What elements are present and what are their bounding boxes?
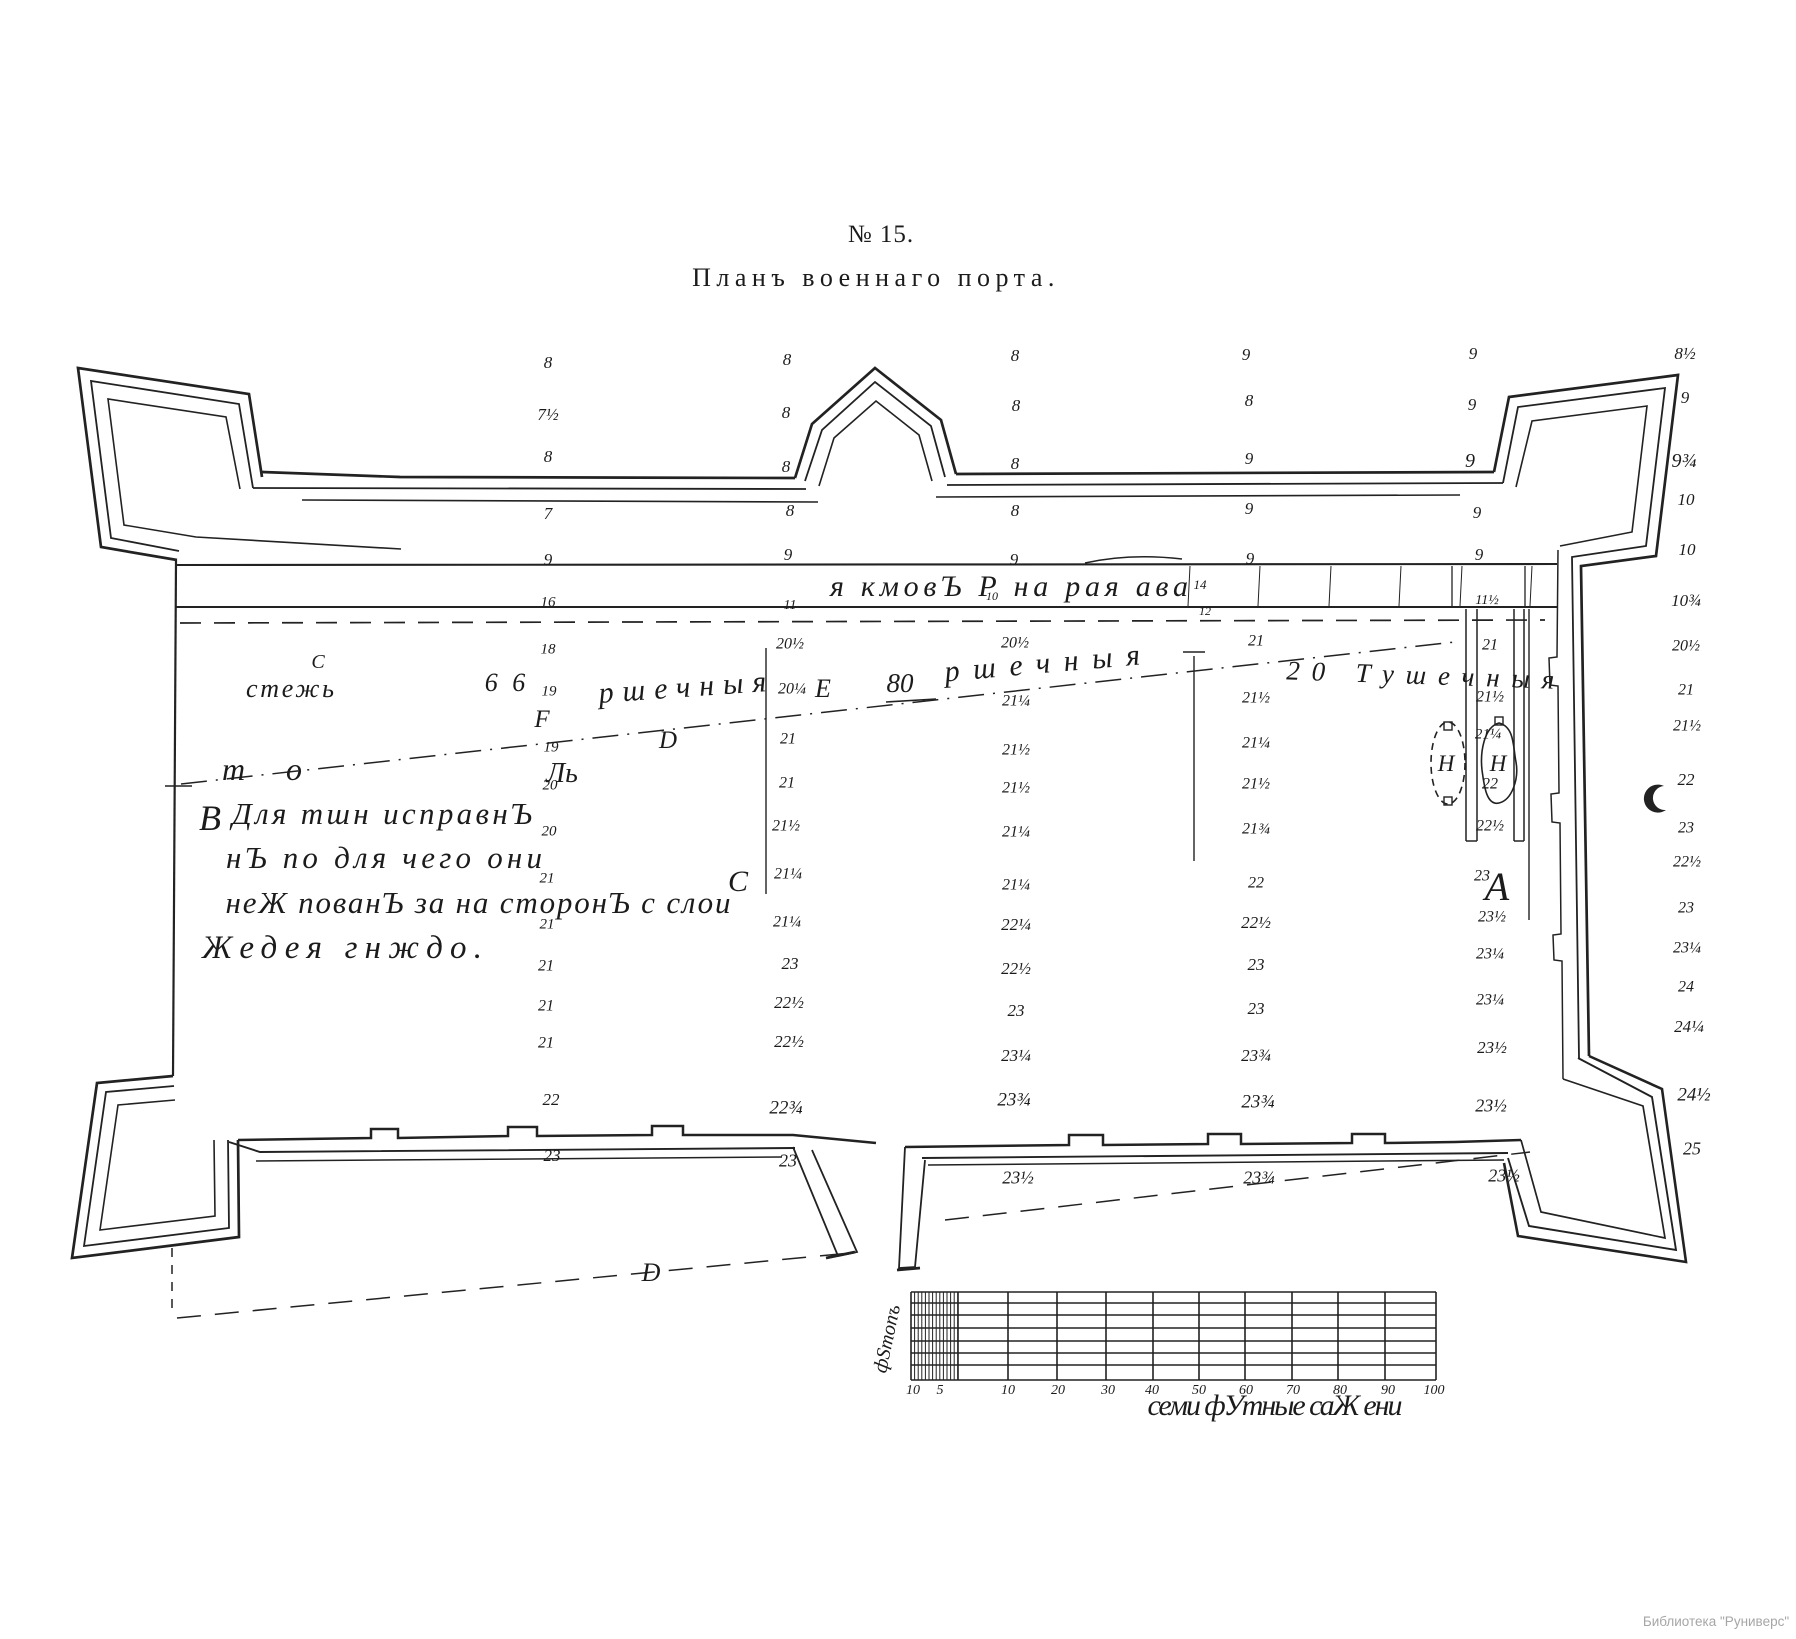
svg-text:семи фУтные саЖ ени: семи фУтные саЖ ени [1148, 1389, 1403, 1422]
svg-text:21: 21 [780, 731, 796, 748]
svg-text:9: 9 [1469, 344, 1478, 363]
svg-text:23: 23 [1008, 1001, 1025, 1020]
svg-text:8: 8 [1011, 346, 1020, 365]
svg-text:21¼: 21¼ [773, 914, 801, 931]
svg-text:23: 23 [779, 1150, 797, 1170]
svg-text:20½: 20½ [776, 636, 804, 653]
svg-text:9: 9 [1468, 395, 1477, 414]
svg-text:7½: 7½ [537, 405, 559, 424]
svg-text:16: 16 [541, 594, 557, 610]
svg-text:21¼: 21¼ [1242, 735, 1270, 752]
svg-text:21: 21 [1678, 682, 1694, 699]
svg-text:22½: 22½ [1001, 959, 1031, 978]
svg-text:23: 23 [1248, 955, 1265, 974]
svg-text:22½: 22½ [774, 1032, 804, 1051]
svg-text:6 6: 6 6 [485, 668, 530, 697]
svg-text:Планъ военнаго порта.: Планъ военнаго порта. [692, 263, 1060, 292]
svg-text:Ль: Ль [545, 758, 578, 789]
svg-text:F: F [533, 706, 550, 733]
svg-text:С: С [728, 865, 749, 898]
svg-text:10: 10 [1678, 490, 1696, 509]
svg-text:24¼: 24¼ [1674, 1017, 1704, 1036]
svg-text:23½: 23½ [1488, 1165, 1520, 1185]
svg-text:23½: 23½ [1002, 1167, 1034, 1187]
svg-text:Библиотека "Руниверс": Библиотека "Руниверс" [1643, 1614, 1789, 1629]
svg-text:H: H [1489, 751, 1508, 776]
svg-text:неЖ пованЪ за на сторонЪ с сло: неЖ пованЪ за на сторонЪ с слои [226, 885, 731, 920]
svg-text:23½: 23½ [1475, 1095, 1507, 1115]
svg-text:21¼: 21¼ [1002, 693, 1030, 710]
svg-text:8: 8 [1011, 501, 1020, 520]
svg-text:23¼: 23¼ [1476, 992, 1504, 1009]
svg-text:11: 11 [784, 598, 797, 613]
svg-text:23¾: 23¾ [997, 1090, 1030, 1111]
svg-text:21½: 21½ [1673, 718, 1701, 735]
svg-text:18: 18 [541, 641, 557, 657]
svg-text:22: 22 [1248, 875, 1264, 892]
svg-text:9: 9 [1473, 503, 1482, 522]
svg-text:22: 22 [1678, 770, 1696, 789]
svg-text:9: 9 [784, 545, 793, 564]
svg-text:22½: 22½ [1241, 913, 1271, 932]
svg-text:9: 9 [1242, 345, 1251, 364]
svg-text:21¾: 21¾ [1242, 821, 1270, 838]
svg-text:№ 15.: № 15. [848, 221, 914, 248]
svg-text:23: 23 [1678, 820, 1694, 837]
svg-text:8: 8 [786, 501, 795, 520]
svg-text:10¾: 10¾ [1671, 591, 1701, 610]
svg-text:21: 21 [538, 958, 554, 975]
svg-text:8½: 8½ [1674, 344, 1696, 363]
svg-text:21: 21 [538, 998, 554, 1015]
svg-text:20: 20 [542, 823, 558, 839]
svg-text:23¾: 23¾ [1243, 1167, 1275, 1187]
svg-text:23: 23 [1678, 900, 1694, 917]
svg-text:21: 21 [1248, 633, 1264, 650]
svg-text:9¾: 9¾ [1672, 450, 1697, 472]
svg-text:5: 5 [937, 1383, 944, 1398]
svg-text:21¼: 21¼ [1475, 726, 1501, 742]
svg-text:9: 9 [1245, 449, 1254, 468]
svg-text:21¼: 21¼ [1002, 824, 1030, 841]
svg-text:14: 14 [1194, 577, 1208, 592]
svg-text:23: 23 [782, 954, 799, 973]
svg-text:В: В [199, 798, 221, 838]
svg-text:10: 10 [1001, 1383, 1015, 1398]
svg-text:20: 20 [1051, 1383, 1065, 1398]
svg-text:21½: 21½ [1002, 780, 1030, 797]
svg-text:9: 9 [1245, 499, 1254, 518]
svg-text:25: 25 [1683, 1138, 1701, 1158]
svg-text:23¼: 23¼ [1673, 940, 1701, 957]
svg-text:23¼: 23¼ [1001, 1046, 1031, 1065]
svg-text:9: 9 [1010, 550, 1019, 569]
svg-text:8: 8 [1012, 396, 1021, 415]
svg-text:19: 19 [542, 683, 558, 699]
svg-text:8: 8 [782, 457, 791, 476]
svg-text:21¼: 21¼ [774, 866, 802, 883]
svg-text:22½: 22½ [1476, 818, 1504, 835]
svg-text:11½: 11½ [1475, 593, 1499, 608]
svg-text:А: А [1482, 864, 1510, 909]
svg-text:24½: 24½ [1677, 1085, 1710, 1106]
svg-text:23¾: 23¾ [1241, 1092, 1274, 1113]
svg-text:19: 19 [544, 739, 560, 755]
svg-text:100: 100 [1424, 1383, 1445, 1398]
svg-text:21½: 21½ [772, 818, 800, 835]
svg-text:21½: 21½ [1242, 690, 1270, 707]
svg-text:D: D [641, 1258, 661, 1287]
svg-text:22: 22 [1482, 776, 1498, 793]
svg-text:8: 8 [782, 403, 791, 422]
svg-text:D: D [658, 727, 677, 754]
svg-text:12: 12 [1199, 604, 1211, 618]
svg-text:20½: 20½ [1672, 638, 1700, 655]
svg-text:8: 8 [1245, 391, 1254, 410]
svg-text:H: H [1437, 751, 1456, 776]
svg-text:21½: 21½ [1242, 776, 1270, 793]
svg-text:23: 23 [1248, 999, 1265, 1018]
svg-text:23½: 23½ [1477, 1038, 1507, 1057]
svg-text:22: 22 [543, 1090, 561, 1109]
svg-text:22½: 22½ [1673, 854, 1701, 871]
svg-text:21: 21 [779, 775, 795, 792]
svg-text:8: 8 [783, 350, 792, 369]
svg-text:23¾: 23¾ [1241, 1046, 1271, 1065]
svg-text:21¼: 21¼ [1002, 877, 1030, 894]
svg-text:8: 8 [1011, 454, 1020, 473]
svg-text:23½: 23½ [1478, 909, 1506, 926]
svg-text:9: 9 [1681, 388, 1690, 407]
svg-text:С: С [311, 651, 325, 673]
svg-text:21½: 21½ [1002, 742, 1030, 759]
svg-text:10: 10 [906, 1383, 920, 1398]
svg-text:30: 30 [1100, 1383, 1115, 1398]
svg-text:22½: 22½ [774, 993, 804, 1012]
svg-text:20¼: 20¼ [778, 681, 806, 698]
svg-text:9: 9 [1475, 545, 1484, 564]
svg-text:22¾: 22¾ [769, 1098, 802, 1119]
svg-text:E: E [814, 674, 831, 703]
svg-text:нЪ по для чего они: нЪ по для чего они [226, 840, 542, 875]
svg-text:21: 21 [538, 1035, 554, 1052]
svg-text:9: 9 [1246, 549, 1255, 568]
svg-text:21: 21 [1482, 637, 1498, 654]
svg-text:22¼: 22¼ [1001, 915, 1031, 934]
svg-text:8: 8 [544, 353, 553, 372]
svg-text:80: 80 [887, 668, 915, 698]
svg-text:8: 8 [544, 447, 553, 466]
svg-text:23: 23 [544, 1146, 561, 1165]
svg-text:24: 24 [1678, 979, 1694, 996]
svg-text:10: 10 [1679, 540, 1697, 559]
svg-text:9: 9 [1465, 450, 1475, 472]
svg-text:9: 9 [544, 550, 553, 569]
svg-text:23¼: 23¼ [1476, 946, 1504, 963]
